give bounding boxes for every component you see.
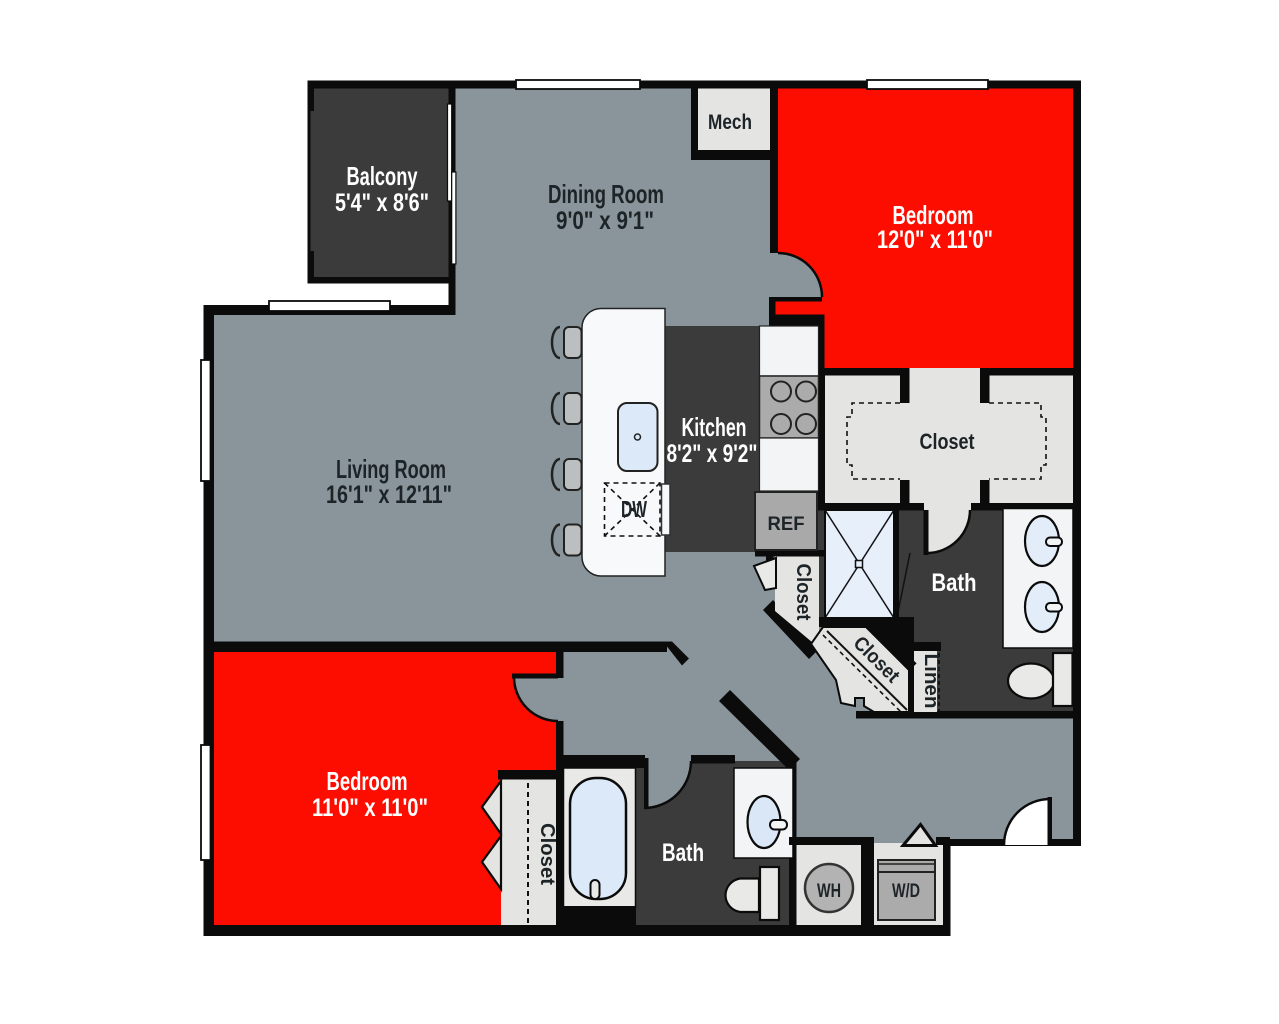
- svg-text:Closet: Closet: [792, 564, 814, 621]
- svg-text:Kitchen: Kitchen: [682, 412, 747, 442]
- svg-text:WH: WH: [817, 881, 841, 902]
- svg-text:Living Room: Living Room: [336, 454, 446, 484]
- svg-text:Bath: Bath: [662, 839, 704, 867]
- svg-text:16'1" x 12'11": 16'1" x 12'11": [326, 481, 452, 509]
- svg-text:Dining Room: Dining Room: [548, 179, 664, 209]
- svg-text:8'2" x 9'2": 8'2" x 9'2": [667, 440, 758, 468]
- svg-text:5'4" x 8'6": 5'4" x 8'6": [335, 189, 429, 217]
- svg-text:Bath: Bath: [932, 569, 977, 597]
- svg-text:W/D: W/D: [892, 881, 920, 902]
- svg-text:11'0" x 11'0": 11'0" x 11'0": [312, 794, 428, 822]
- svg-text:Linen: Linen: [920, 654, 942, 709]
- svg-text:Balcony: Balcony: [347, 161, 418, 191]
- svg-text:9'0" x 9'1": 9'0" x 9'1": [556, 207, 654, 235]
- svg-text:Closet: Closet: [920, 429, 976, 454]
- svg-text:REF: REF: [768, 514, 805, 535]
- svg-text:12'0" x 11'0": 12'0" x 11'0": [877, 226, 993, 254]
- svg-text:Mech: Mech: [708, 111, 752, 134]
- svg-text:DW: DW: [621, 496, 647, 522]
- svg-text:Closet: Closet: [536, 823, 558, 885]
- svg-text:Bedroom: Bedroom: [327, 766, 408, 796]
